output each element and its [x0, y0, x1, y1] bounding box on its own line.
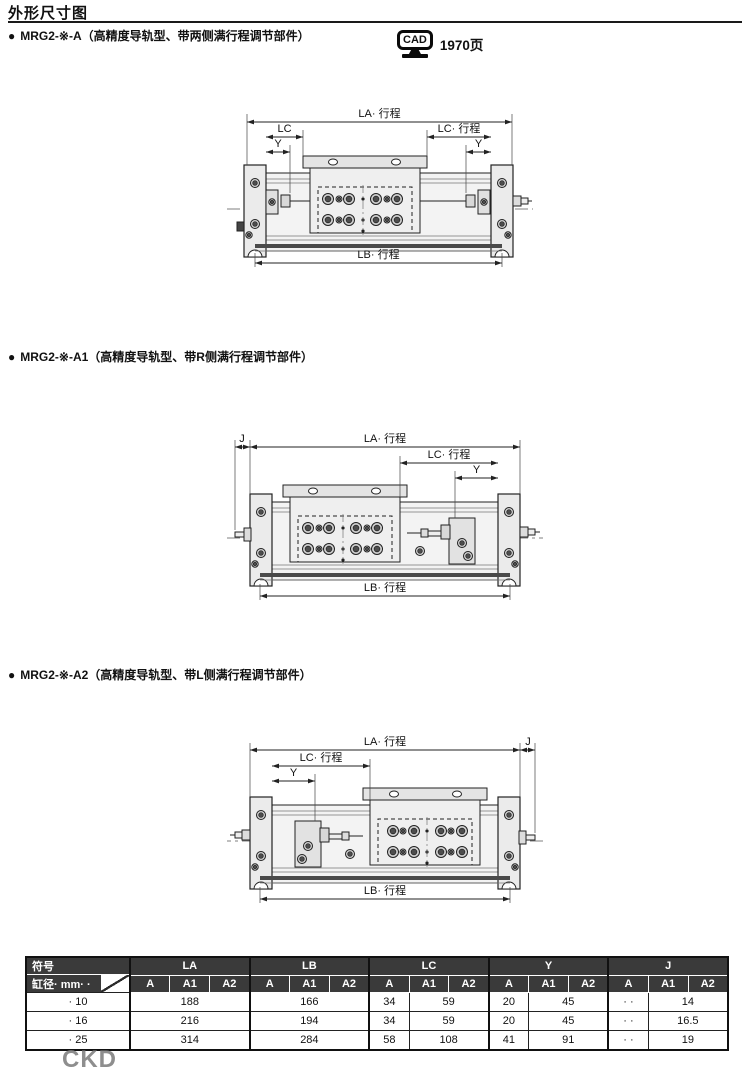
value-cell: 34: [369, 1012, 409, 1031]
value-cell: 45: [529, 993, 609, 1012]
value-cell: · ·: [608, 1012, 648, 1031]
section-title-a2: MRG2-※-A2（高精度导轨型、带L侧满行程调节部件）: [20, 666, 311, 683]
page-title: 外形尺寸图: [8, 2, 88, 23]
dim-label-lc: LC· 行程: [400, 450, 498, 461]
subheader-a: A: [489, 975, 529, 993]
dim-label-y: Y: [455, 465, 498, 476]
subheader-a2: A2: [449, 975, 489, 993]
dim-label-j: J: [513, 737, 543, 748]
corner-diagonal-cell: 符号 缸径· mm· ·: [27, 958, 129, 992]
dim-label-lb: LB· 行程: [260, 886, 510, 897]
value-cell: 14: [648, 993, 728, 1012]
cad-page-ref: 1970页: [440, 34, 484, 54]
subheader-a2: A2: [210, 975, 250, 993]
value-cell: 20: [489, 993, 529, 1012]
dimension-table: 符号 缸径· mm· · LA LB LC Y J A A1 A2 A A1 A…: [25, 956, 729, 1051]
ckd-logo: CKD: [62, 1046, 117, 1073]
subheader-a1: A1: [289, 975, 329, 993]
group-header-y: Y: [489, 957, 609, 975]
group-header-la: LA: [130, 957, 250, 975]
value-cell: 20: [489, 1012, 529, 1031]
dim-label-lc-left: LC: [266, 124, 303, 135]
value-cell: 59: [409, 1012, 489, 1031]
subheader-a: A: [608, 975, 648, 993]
subheader-a: A: [250, 975, 290, 993]
dimension-drawing-a2: LA· 行程 J LC· 行程 Y LB· 行程: [225, 735, 545, 925]
dimension-drawing-a1: J LA· 行程 LC· 行程 Y LB· 行程: [225, 432, 545, 627]
dim-label-lb: LB· 行程: [255, 250, 502, 261]
dim-label-la: LA· 行程: [250, 737, 520, 748]
subheader-a1: A1: [409, 975, 449, 993]
table-header-groups: 符号 缸径· mm· · LA LB LC Y J: [26, 957, 728, 975]
dim-label-la: LA· 行程: [247, 109, 512, 120]
value-cell: 34: [369, 993, 409, 1012]
cad-monitor-base: [402, 54, 428, 58]
value-cell: 194: [250, 1012, 370, 1031]
dim-label-y-left: Y: [266, 139, 290, 150]
table-row: · 25 314 284 58 108 41 91 · · 19: [26, 1031, 728, 1051]
bore-cell: · 16: [26, 1012, 130, 1031]
cylinder-diagram-a2: [225, 735, 545, 930]
cylinder-diagram-a1: [225, 432, 545, 627]
bore-cell: · 10: [26, 993, 130, 1012]
group-header-j: J: [608, 957, 728, 975]
value-cell: 19: [648, 1031, 728, 1051]
dim-label-lc-right: LC· 行程: [425, 124, 493, 135]
table-row: · 16 216 194 34 59 20 45 · · 16.5: [26, 1012, 728, 1031]
section-title-a: MRG2-※-A（高精度导轨型、带两侧满行程调节部件）: [20, 27, 309, 44]
section-title-a1: MRG2-※-A1（高精度导轨型、带R侧满行程调节部件）: [20, 348, 313, 365]
subheader-a2: A2: [688, 975, 728, 993]
dim-label-lb: LB· 行程: [260, 583, 510, 594]
subheader-a2: A2: [568, 975, 608, 993]
cad-reference: CAD 1970页: [397, 30, 483, 58]
table-header-sub: A A1 A2 A A1 A2 A A1 A2 A A1 A2 A A1 A2: [26, 975, 728, 993]
subheader-a: A: [369, 975, 409, 993]
value-cell: 58: [369, 1031, 409, 1051]
subheader-a1: A1: [170, 975, 210, 993]
value-cell: 216: [130, 1012, 250, 1031]
subheader-a2: A2: [329, 975, 369, 993]
cad-screen-label: CAD: [397, 30, 433, 50]
subheader-a1: A1: [529, 975, 569, 993]
corner-row-bore: 缸径· mm· ·: [27, 975, 129, 992]
value-cell: 59: [409, 993, 489, 1012]
value-cell: 45: [529, 1012, 609, 1031]
table-corner-cell: 符号 缸径· mm· ·: [26, 957, 130, 993]
subheader-a1: A1: [648, 975, 688, 993]
value-cell: · ·: [608, 993, 648, 1012]
table-row: · 10 188 166 34 59 20 45 · · 14: [26, 993, 728, 1012]
value-cell: · ·: [608, 1031, 648, 1051]
dim-label-la: LA· 行程: [250, 434, 520, 445]
dim-label-lc: LC· 行程: [272, 753, 370, 764]
dim-label-y: Y: [272, 768, 315, 779]
section-heading-a2: ● MRG2-※-A2（高精度导轨型、带L侧满行程调节部件）: [8, 666, 312, 683]
title-divider: [8, 21, 742, 23]
section-heading-a: ● MRG2-※-A（高精度导轨型、带两侧满行程调节部件）: [8, 27, 310, 44]
cad-monitor-stand: [409, 50, 421, 54]
value-cell: 314: [130, 1031, 250, 1051]
cad-monitor-icon: CAD: [397, 30, 433, 58]
corner-label-bore: 缸径· mm· ·: [32, 976, 91, 992]
bullet-icon: ●: [8, 351, 15, 363]
catalog-page: 外形尺寸图 ● MRG2-※-A（高精度导轨型、带两侧满行程调节部件） CAD …: [0, 0, 750, 1073]
value-cell: 188: [130, 993, 250, 1012]
group-header-lb: LB: [250, 957, 370, 975]
bullet-icon: ●: [8, 669, 15, 681]
value-cell: 166: [250, 993, 370, 1012]
subheader-a: A: [130, 975, 170, 993]
corner-diagonal: [101, 975, 129, 992]
bullet-icon: ●: [8, 30, 15, 42]
value-cell: 91: [529, 1031, 609, 1051]
value-cell: 284: [250, 1031, 370, 1051]
section-heading-a1: ● MRG2-※-A1（高精度导轨型、带R侧满行程调节部件）: [8, 348, 313, 365]
value-cell: 41: [489, 1031, 529, 1051]
value-cell: 108: [409, 1031, 489, 1051]
value-cell: 16.5: [648, 1012, 728, 1031]
dim-label-y-right: Y: [466, 139, 491, 150]
group-header-lc: LC: [369, 957, 489, 975]
corner-label-symbol: 符号: [27, 958, 129, 974]
dimension-drawing-a: LA· 行程 LC LC· 行程 Y Y LB· 行程: [225, 103, 535, 291]
